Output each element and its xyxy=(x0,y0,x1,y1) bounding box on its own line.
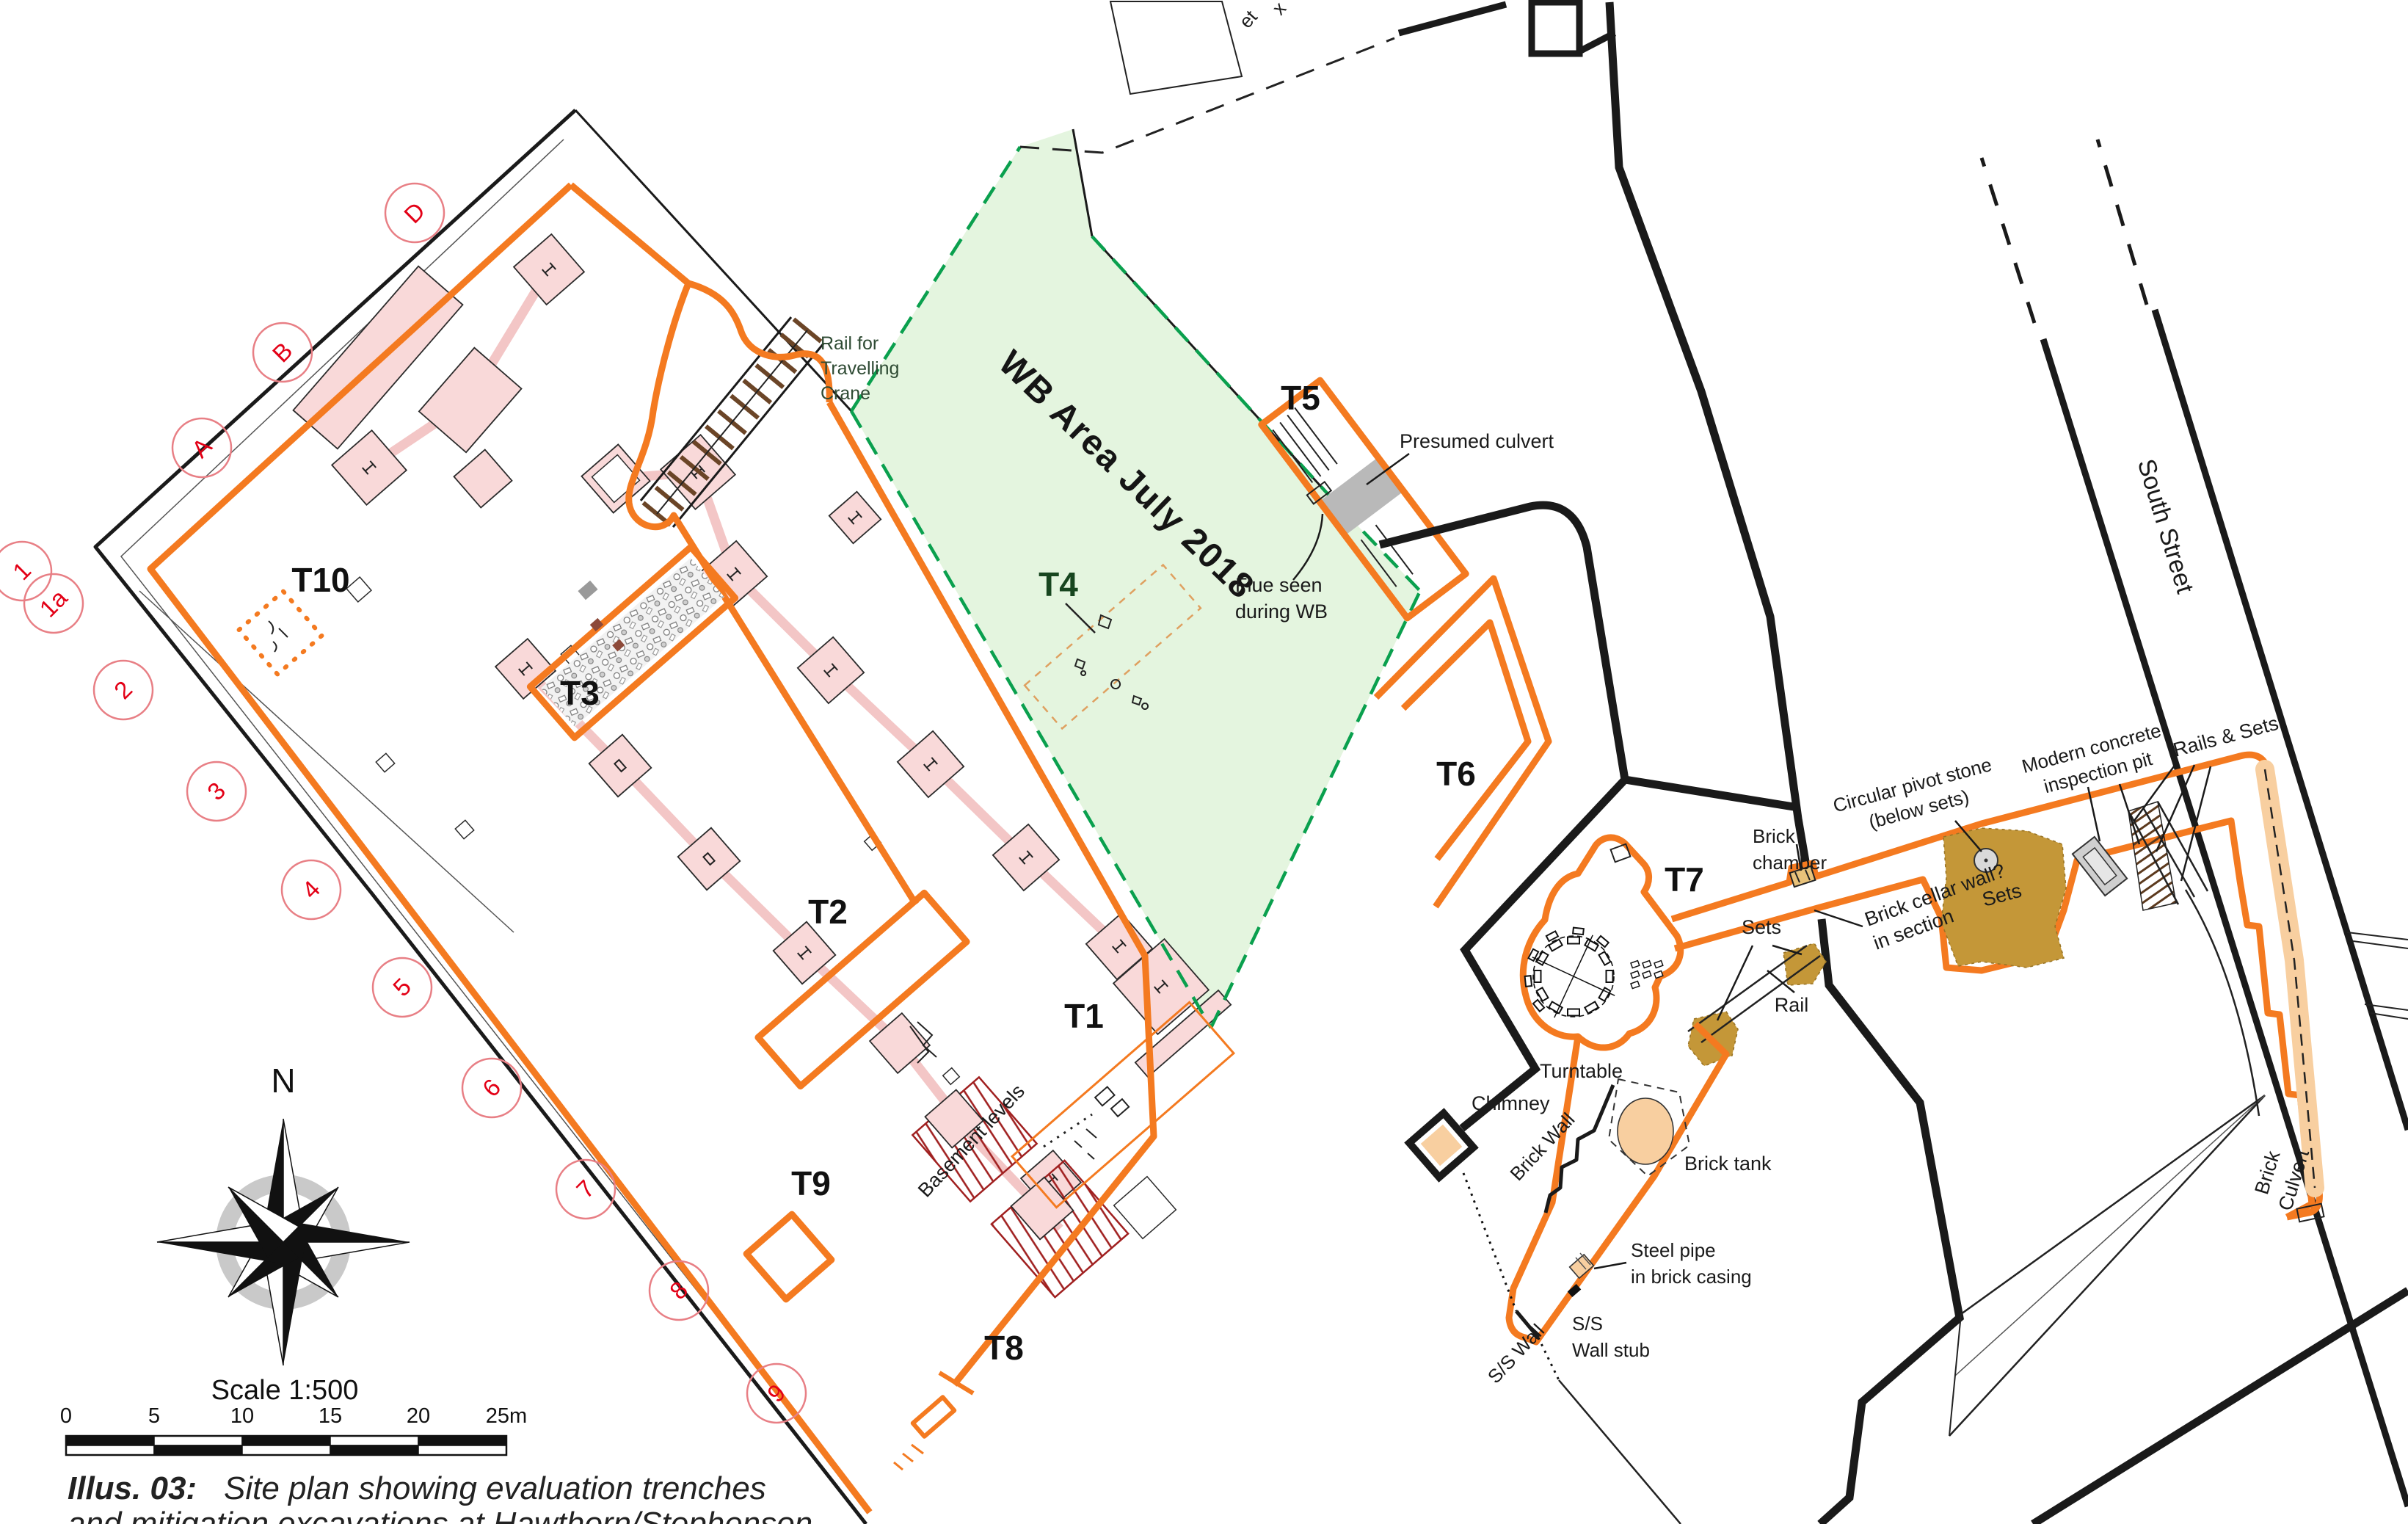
brick-chamber-label-line1: Brick xyxy=(1753,825,1796,847)
caption-line2: and mitigation excavations at Hawthorn/S… xyxy=(68,1506,812,1524)
rail-crane-label-line2: Travelling xyxy=(821,358,899,379)
scale-bar-segment-bottom xyxy=(330,1445,418,1455)
ss-wall-dotted-a xyxy=(1463,1173,1516,1311)
turntable-debris xyxy=(1631,971,1640,979)
trench-t10-dotted-outline xyxy=(239,592,322,675)
boundary-dashed-top xyxy=(1020,38,1394,153)
turntable-debris xyxy=(1654,961,1663,968)
building-boundary-northeast xyxy=(575,110,851,411)
grid-circle-label: 5 xyxy=(388,973,416,1001)
ramp-wedge-base xyxy=(1949,1314,1961,1436)
grid-circle-label: 1 xyxy=(7,556,36,585)
scale-bar-segment-top xyxy=(66,1436,154,1445)
steel-pipe xyxy=(1570,1255,1594,1278)
ss-wall-thin xyxy=(1559,1380,1681,1524)
ss-stub-label-line1: S/S xyxy=(1572,1313,1603,1335)
turntable-debris xyxy=(1631,961,1640,968)
brick-tank-label: Brick tank xyxy=(1684,1153,1772,1175)
scale-bar-segment-bottom xyxy=(242,1445,330,1455)
scale-bar-segment-top xyxy=(242,1436,330,1445)
turntable-stone xyxy=(1537,951,1549,965)
turntable-stone xyxy=(1585,1002,1598,1014)
scale-bar-segment-top xyxy=(154,1436,242,1445)
trench-label-t5: T5 xyxy=(1281,379,1320,417)
trench-t1-dotted xyxy=(1044,1114,1092,1147)
column-base xyxy=(376,753,394,772)
trench-label-t8: T8 xyxy=(984,1329,1024,1367)
top-wall-notch xyxy=(1532,2,1579,54)
pink-annex xyxy=(419,348,522,453)
rail-crane-label-line3: Crane xyxy=(821,383,870,404)
scale-bar-segment-top xyxy=(418,1436,506,1445)
column-base xyxy=(346,577,371,602)
trench-label-t9: T9 xyxy=(791,1164,831,1202)
brick-tank xyxy=(1618,1098,1673,1164)
turntable-debris xyxy=(1631,981,1640,989)
ss-wall-dotted-b xyxy=(1538,1338,1559,1380)
grid-circle-label: 2 xyxy=(109,675,137,704)
trench-t8 xyxy=(894,1397,954,1470)
south-street xyxy=(1982,139,2408,1506)
turntable-stone xyxy=(1585,940,1598,951)
compass-north-label: N xyxy=(271,1062,295,1100)
wall-turntable-connector xyxy=(1625,780,1798,808)
scale-title: Scale 1:500 xyxy=(211,1375,359,1406)
trench-label-t6: T6 xyxy=(1436,755,1476,793)
south-street-label: South Street xyxy=(2132,456,2200,597)
grid-circle-label: 1a xyxy=(34,584,73,623)
street-west-line xyxy=(2043,339,2408,1506)
grid-circle-label: 4 xyxy=(297,875,325,904)
top-wall-a xyxy=(1399,4,1506,33)
trench-label-t7: T7 xyxy=(1665,860,1704,899)
flue-label-line2: during WB xyxy=(1235,600,1328,623)
scale-tick-20: 20 xyxy=(407,1404,430,1428)
turntable-outer-stone xyxy=(1573,928,1584,935)
scale-bar-segment-top xyxy=(330,1436,418,1445)
scale-tick-0: 0 xyxy=(60,1404,72,1428)
trench-label-t4: T4 xyxy=(1039,565,1078,603)
turntable-stone xyxy=(1535,970,1541,982)
rails-sets-label: Rails & Sets xyxy=(2171,712,2281,761)
compass-rose: N xyxy=(157,1062,410,1365)
scale-tick-5: 5 xyxy=(148,1404,160,1428)
wall-parcel-west-upper xyxy=(1609,2,1807,870)
site-plan-page: Rail for Travelling Crane WB Area July 2… xyxy=(0,0,2408,1524)
trench-label-t1: T1 xyxy=(1064,997,1104,1035)
turntable-stone xyxy=(1537,987,1549,1001)
column-base xyxy=(943,1068,960,1085)
trench-t1-marks xyxy=(1074,1129,1096,1159)
turntable-outer-stone xyxy=(1525,976,1532,987)
building-boundary-west xyxy=(95,110,866,1524)
trench-t6-inner xyxy=(1403,623,1528,859)
trench-t9-outline xyxy=(746,1214,832,1299)
pivot-stone-center xyxy=(1985,859,1988,863)
scale-bar-segment-bottom xyxy=(66,1445,154,1455)
turntable-stone xyxy=(1599,987,1611,1001)
column-base xyxy=(455,820,473,838)
turntable-stone xyxy=(1599,951,1611,965)
street-east-line xyxy=(2155,310,2408,1130)
rail-crane-label-line1: Rail for xyxy=(821,333,879,354)
ramp-wedge-mid xyxy=(1955,1095,2265,1376)
turntable-label: Turntable xyxy=(1540,1060,1623,1082)
property-line-e1 xyxy=(2347,932,2408,948)
trench-t1-feature-a xyxy=(1095,1087,1114,1106)
chimney-group xyxy=(1409,1113,1681,1524)
brick-chamber-label-line2: chamber xyxy=(1753,852,1827,874)
trench-t8-dashes xyxy=(894,1445,923,1470)
trench-t10-marks xyxy=(269,621,288,652)
ramp-wedge-b xyxy=(1949,1095,2265,1436)
wb-area-polygon xyxy=(851,129,1420,1028)
street-fragment-2: x xyxy=(1267,0,1290,19)
main-building-outline xyxy=(95,110,866,1524)
caption-prefix: Illus. 03: xyxy=(68,1470,197,1506)
trench-t8-outline xyxy=(913,1397,954,1437)
rail-label: Rail xyxy=(1775,994,1809,1016)
flue-label-line1: Flue seen xyxy=(1235,574,1323,596)
trench-t3-feature-a xyxy=(578,581,597,600)
trench-label-t10: T10 xyxy=(291,561,349,599)
grid-circle-label: D xyxy=(399,197,430,228)
trench-label-t2: T2 xyxy=(808,893,848,931)
scale-bar xyxy=(66,1436,506,1455)
scale-tick-15: 15 xyxy=(319,1404,342,1428)
trench-t10 xyxy=(239,592,322,675)
trench-t9 xyxy=(746,1214,832,1299)
trench-t1-feature-b xyxy=(1111,1099,1129,1117)
wall-parcel-west-lower xyxy=(1820,919,1960,1524)
brick-wall-label: Brick Wall xyxy=(1505,1108,1579,1185)
grid-circle-label: 6 xyxy=(477,1073,506,1102)
trench-label-t3: T3 xyxy=(560,674,600,712)
turntable-stone xyxy=(1568,937,1579,944)
ramp-wedge-a xyxy=(1961,1095,2265,1314)
t7-stub-notch xyxy=(1611,844,1631,862)
scale-tick-25: 25m xyxy=(486,1404,527,1428)
turntable-stone xyxy=(1607,970,1613,982)
scale-bar-group: Scale 1:500 0 5 10 15 20 25m xyxy=(60,1375,527,1455)
presumed-culvert-label: Presumed culvert xyxy=(1400,430,1554,452)
grid-circle-label: B xyxy=(267,337,298,368)
trench-t2 xyxy=(758,893,967,1086)
interior-parcel-line xyxy=(139,591,514,932)
grid-circle-label: 3 xyxy=(202,777,230,805)
site-plan-drawing: Rail for Travelling Crane WB Area July 2… xyxy=(0,0,2408,1524)
turntable-stone xyxy=(1549,1002,1562,1014)
turntable-stone xyxy=(1568,1009,1579,1016)
caption-line1: Site plan showing evaluation trenches xyxy=(224,1470,766,1506)
scale-tick-10: 10 xyxy=(230,1404,254,1428)
street-fragment-1: et xyxy=(1234,5,1262,32)
figure-caption: Illus. 03: Site plan showing evaluation … xyxy=(68,1470,812,1524)
trench-t2-outline xyxy=(758,893,967,1086)
steel-pipe-label-line1: Steel pipe xyxy=(1631,1239,1716,1261)
scale-bar-segment-bottom xyxy=(154,1445,242,1455)
turntable-debris xyxy=(1643,961,1651,968)
turntable-debris xyxy=(1643,971,1651,979)
chimney-label: Chimney xyxy=(1472,1092,1550,1114)
turntable-stone xyxy=(1549,940,1562,951)
steel-pipe-label-line2: in brick casing xyxy=(1631,1266,1752,1288)
scale-bar-segment-bottom xyxy=(418,1445,506,1455)
street-east-dashed xyxy=(2098,139,2147,305)
sets-small-label: Sets xyxy=(1742,916,1781,938)
column-base xyxy=(454,449,512,507)
compass-star xyxy=(157,1119,410,1365)
partial-building-top xyxy=(1110,1,1242,94)
leader-steel-pipe xyxy=(1594,1263,1626,1269)
top-edge-structures xyxy=(1110,1,1615,94)
ss-stub-label-line2: Wall stub xyxy=(1572,1339,1650,1361)
orange-boundary-middle-end-tick xyxy=(939,1373,973,1393)
street-west-dashed xyxy=(1982,158,2034,323)
